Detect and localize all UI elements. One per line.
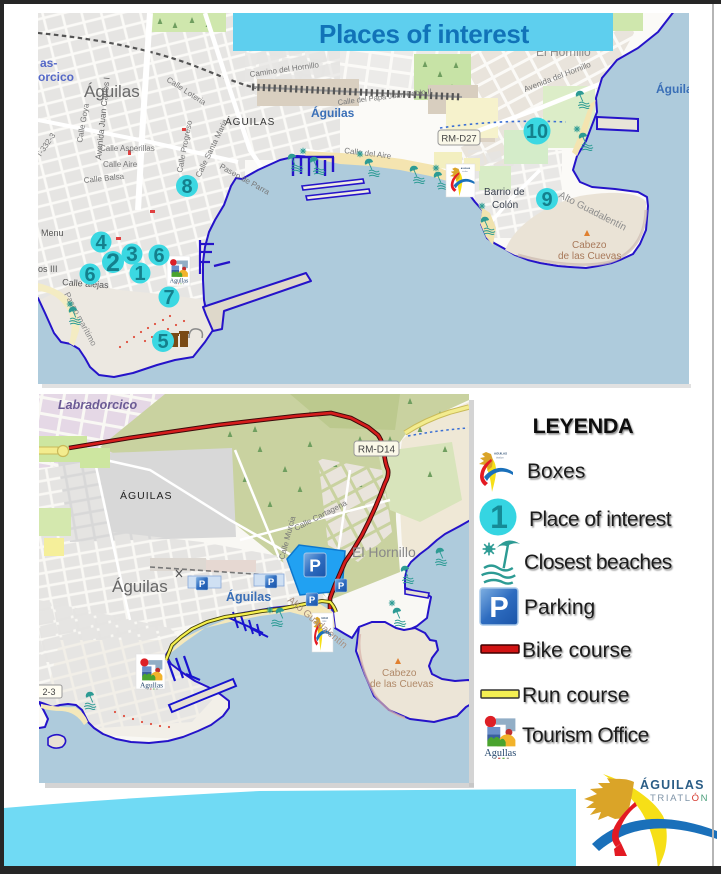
- svg-text:orcico: orcico: [38, 70, 74, 84]
- svg-text:3: 3: [126, 243, 138, 266]
- svg-text:9: 9: [541, 189, 552, 211]
- svg-text:Cabezo: Cabezo: [382, 668, 417, 679]
- svg-text:Calle Aire: Calle Aire: [103, 160, 138, 169]
- svg-text:ÁGUILAS: ÁGUILAS: [640, 777, 705, 792]
- svg-text:Parking: Parking: [524, 596, 595, 619]
- svg-text:Run course: Run course: [522, 684, 629, 707]
- svg-text:5: 5: [157, 331, 168, 353]
- svg-text:Menu: Menu: [41, 228, 64, 238]
- svg-text:Place of interest: Place of interest: [529, 508, 672, 531]
- svg-text:RM-D27: RM-D27: [441, 134, 476, 145]
- svg-text:2-3: 2-3: [42, 687, 55, 697]
- svg-text:LEYENDA: LEYENDA: [533, 414, 634, 438]
- svg-text:ÁGUILAS: ÁGUILAS: [120, 489, 173, 502]
- svg-text:Águilas: Águilas: [311, 105, 355, 120]
- svg-text:TRIATLÓN: TRIATLÓN: [650, 793, 709, 804]
- svg-text:1: 1: [490, 499, 508, 535]
- svg-text:Águilas: Águilas: [226, 589, 271, 604]
- svg-text:de las Cuevas: de las Cuevas: [370, 679, 433, 690]
- svg-text:as-: as-: [40, 56, 57, 70]
- svg-text:4: 4: [95, 232, 107, 254]
- svg-text:P: P: [489, 592, 508, 624]
- svg-text:Tourism Office: Tourism Office: [522, 724, 649, 747]
- svg-text:10: 10: [526, 121, 548, 143]
- svg-text:6: 6: [153, 245, 164, 267]
- svg-text:os III: os III: [38, 264, 58, 274]
- svg-text:Closest beaches: Closest beaches: [524, 551, 672, 574]
- svg-text:RM-D14: RM-D14: [358, 445, 396, 456]
- svg-text:de las Cuevas: de las Cuevas: [558, 251, 621, 262]
- svg-text:Bike course: Bike course: [522, 639, 632, 662]
- svg-text:Cabezo: Cabezo: [572, 240, 607, 251]
- svg-text:8: 8: [181, 176, 192, 198]
- svg-text:Places of interest: Places of interest: [319, 19, 530, 49]
- svg-text:6: 6: [84, 264, 95, 286]
- svg-text:ÁGUILAS: ÁGUILAS: [225, 115, 275, 128]
- svg-text:Calle Asperillas: Calle Asperillas: [100, 144, 155, 153]
- svg-text:Labradorcico: Labradorcico: [58, 398, 138, 412]
- svg-text:El Hornillo: El Hornillo: [352, 544, 416, 560]
- svg-text:7: 7: [163, 287, 174, 309]
- svg-text:1: 1: [134, 263, 145, 285]
- svg-text:2: 2: [106, 249, 120, 277]
- svg-text:Boxes: Boxes: [527, 460, 585, 483]
- svg-text:Águilas: Águilas: [112, 577, 168, 596]
- svg-text:Barrio de: Barrio de: [484, 187, 525, 198]
- svg-text:Colón: Colón: [492, 200, 518, 211]
- svg-text:Águilas: Águilas: [84, 82, 140, 101]
